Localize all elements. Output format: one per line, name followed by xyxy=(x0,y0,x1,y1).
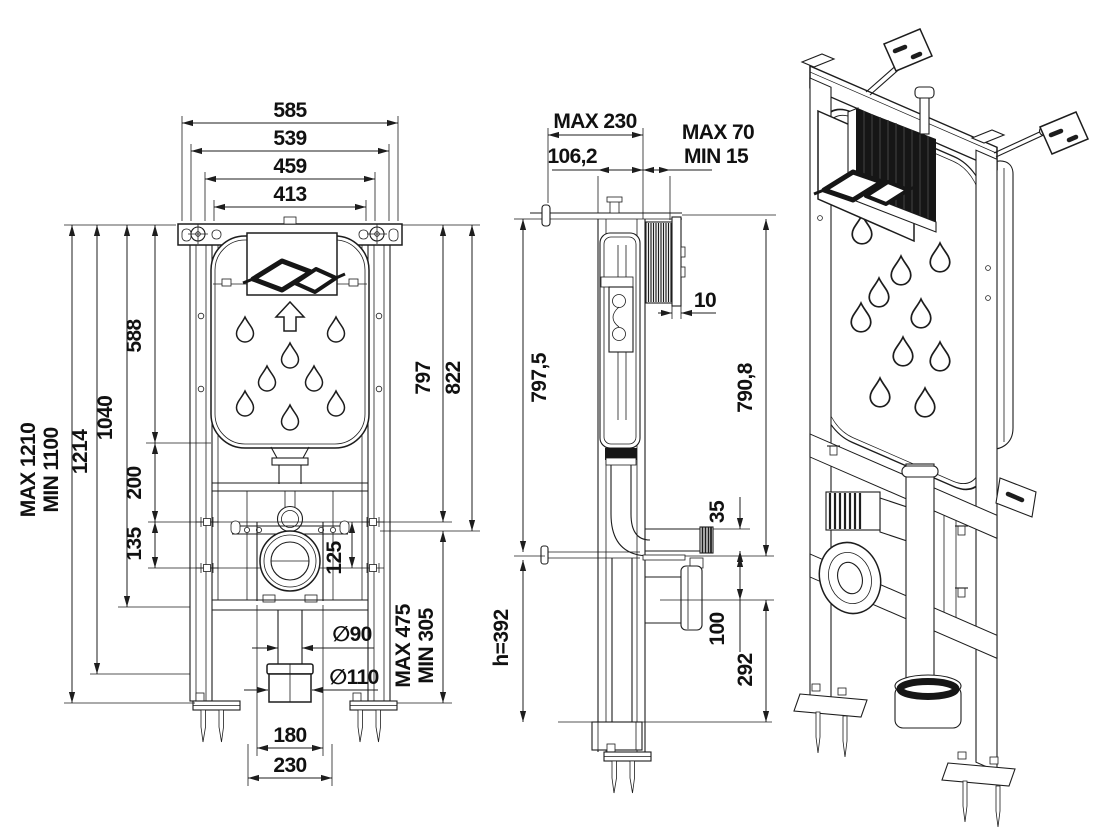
wall-bellows xyxy=(646,217,685,306)
dim-min-305: MIN 305 xyxy=(415,607,438,683)
dim-100: 100 xyxy=(706,612,729,645)
left-foot xyxy=(193,693,240,742)
side-structure xyxy=(530,197,772,793)
dim-dia90: ∅90 xyxy=(332,623,372,646)
wall-bracket-top xyxy=(866,29,932,95)
dim-292: 292 xyxy=(734,653,757,686)
front-cistern xyxy=(211,233,369,484)
hanger-tab xyxy=(284,217,296,224)
dim-min-15: MIN 15 xyxy=(684,145,749,168)
dim-1214: 1214 xyxy=(69,429,92,474)
side-foot xyxy=(604,744,651,793)
dim-max-230: MAX 230 xyxy=(553,110,636,133)
dim-106-2: 106,2 xyxy=(547,145,597,168)
supply-thread xyxy=(700,527,713,553)
dim-180: 180 xyxy=(273,724,306,747)
dim-230: 230 xyxy=(273,754,306,777)
front-view: 585 539 459 413 MAX 1210 MIN 1100 1214 1… xyxy=(17,99,480,786)
isometric-view xyxy=(794,29,1088,827)
side-view: MAX 230 106,2 MAX 70 MIN 15 10 797,5 h=3… xyxy=(490,110,776,793)
dim-135: 135 xyxy=(123,526,146,560)
dim-min-1100: MIN 1100 xyxy=(40,427,63,512)
dim-588: 588 xyxy=(123,318,146,352)
dim-539: 539 xyxy=(273,127,306,150)
dim-35: 35 xyxy=(706,500,729,523)
dim-max-70: MAX 70 xyxy=(682,121,754,144)
dim-max-475: MAX 475 xyxy=(392,603,415,687)
wc-frame-installation-drawing: 585 539 459 413 MAX 1210 MIN 1100 1214 1… xyxy=(0,0,1113,835)
dim-585: 585 xyxy=(273,99,307,122)
dim-h-392: h=392 xyxy=(490,609,513,666)
dim-125: 125 xyxy=(323,540,346,574)
technical-drawing-page: 585 539 459 413 MAX 1210 MIN 1100 1214 1… xyxy=(0,0,1113,835)
dim-max-1210: MAX 1210 xyxy=(17,423,40,517)
dim-dia110: ∅110 xyxy=(329,666,378,689)
outlet-flange xyxy=(681,566,702,630)
dim-822: 822 xyxy=(442,361,465,394)
dim-790-8: 790,8 xyxy=(734,362,757,412)
dim-1040: 1040 xyxy=(94,396,117,440)
wall-bracket-right xyxy=(994,112,1088,157)
dim-10: 10 xyxy=(694,289,716,312)
dim-200: 200 xyxy=(123,466,146,499)
dim-797: 797 xyxy=(412,361,435,394)
dim-413: 413 xyxy=(273,183,306,206)
dim-459: 459 xyxy=(273,155,306,178)
dim-797-5: 797,5 xyxy=(528,352,551,402)
